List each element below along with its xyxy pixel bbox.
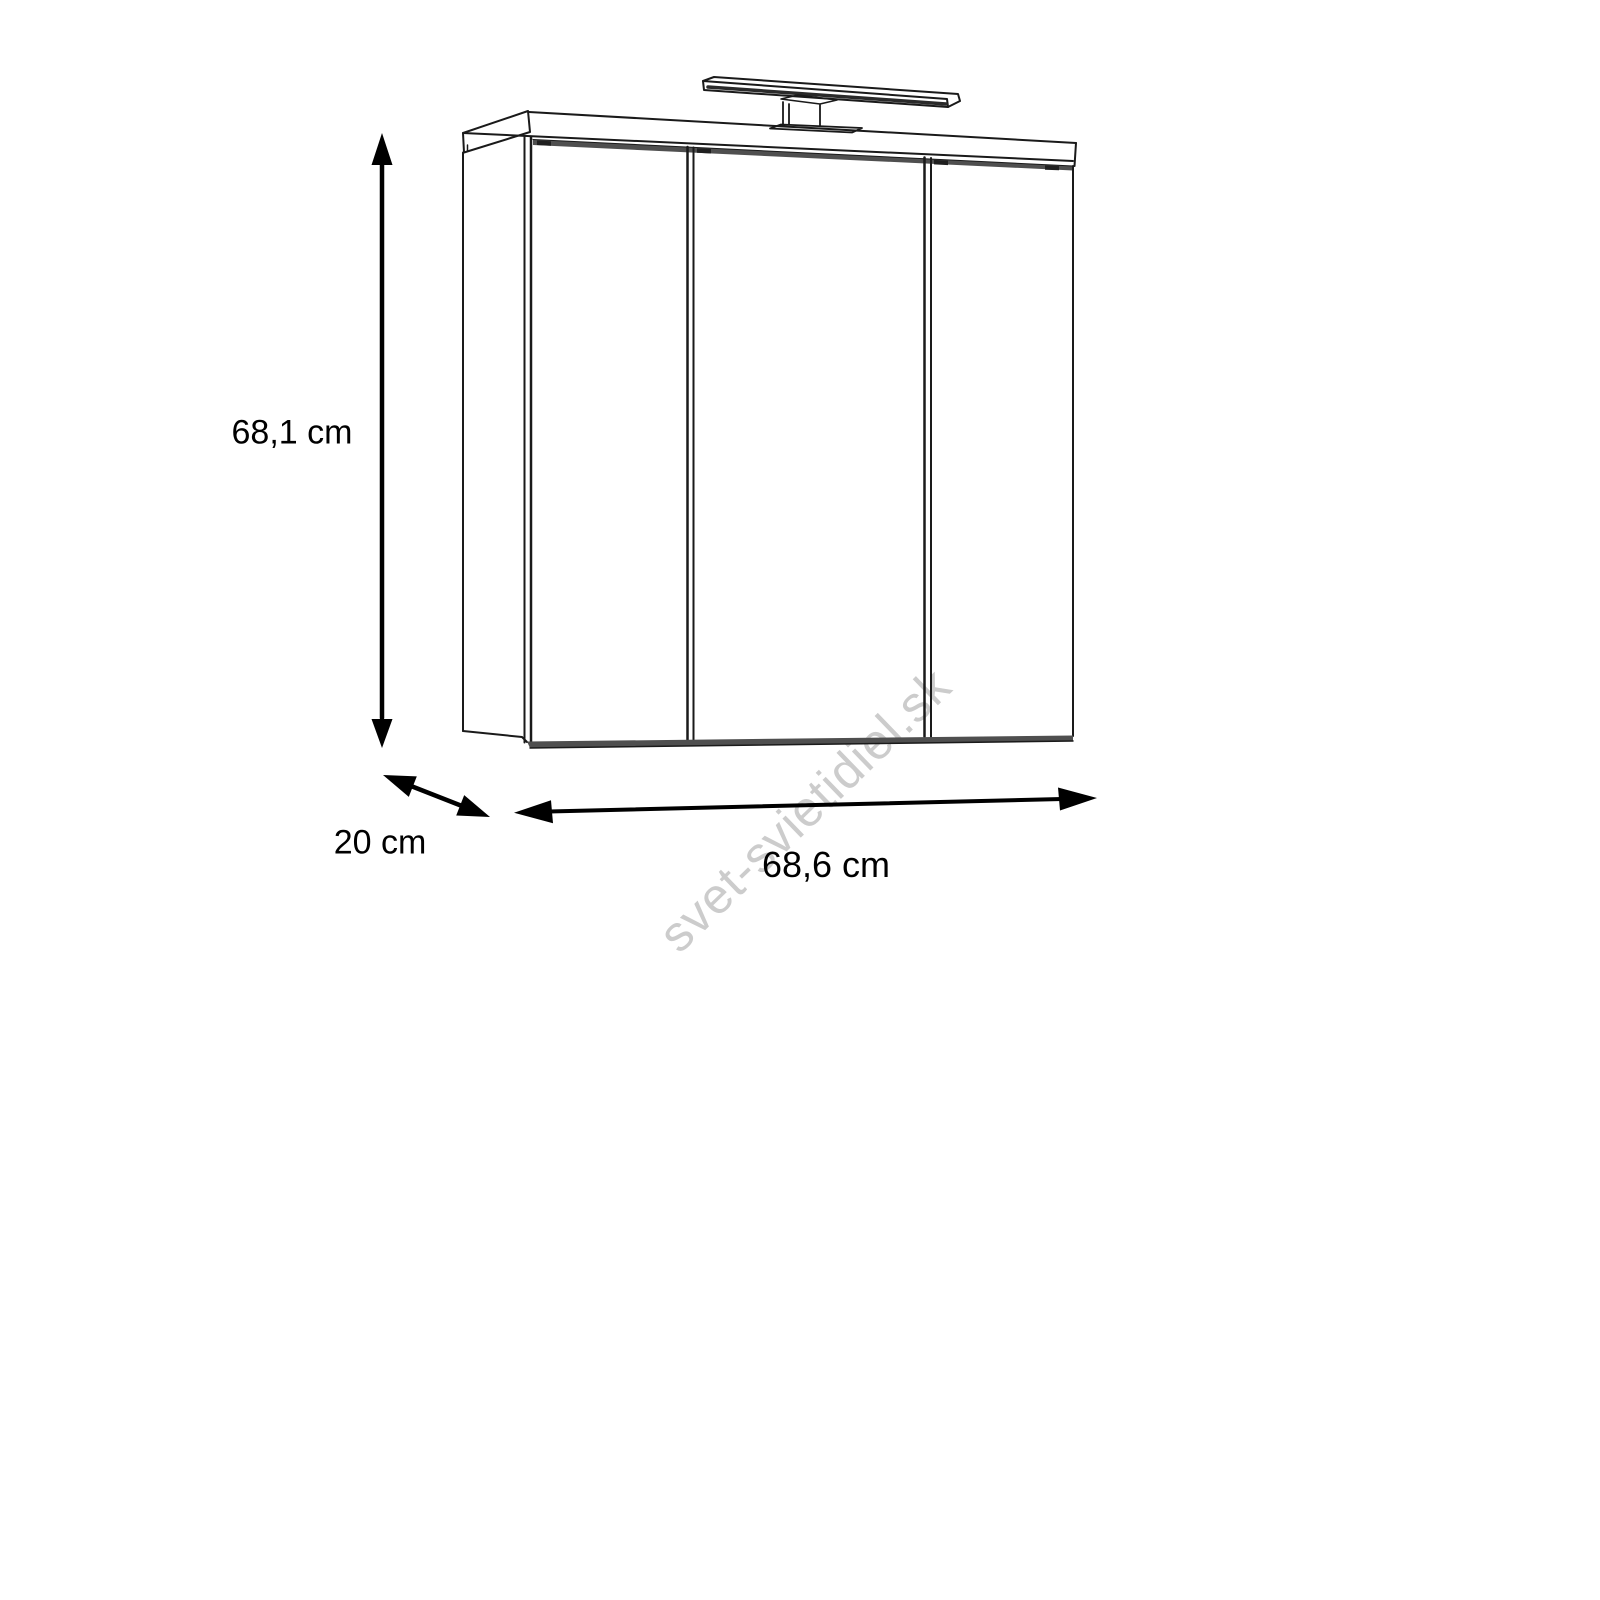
cabinet-line-drawing — [0, 0, 1600, 1600]
width-dimension-arrow — [514, 788, 1097, 824]
arrow-left-head-icon — [514, 800, 553, 823]
height-dimension-arrow — [372, 133, 393, 748]
slab-back-top-edge — [529, 112, 1076, 143]
hinge-plate-icon — [537, 141, 551, 146]
depth-dimension-label: 20 cm — [334, 824, 427, 863]
depth-dimension-arrow — [383, 775, 490, 817]
mirror-doors — [525, 137, 1074, 745]
depth-arrow-shaft — [411, 786, 462, 806]
dimension-diagram-page: svet-svietidiel.sk — [0, 0, 1600, 1600]
slab-right-end — [1075, 143, 1077, 166]
arrow-downright-head-icon — [456, 795, 490, 817]
height-dimension-label: 68,1 cm — [232, 414, 353, 453]
hinge-plate-icon — [697, 148, 711, 153]
cabinet-top-slab — [463, 111, 1076, 166]
door-top-shadow-band — [533, 140, 1073, 171]
arrow-right-head-icon — [1058, 788, 1097, 811]
width-dimension-label: 68,6 cm — [762, 844, 890, 886]
cabinet-side-panel — [463, 153, 527, 743]
slab-left-end-face — [463, 111, 530, 153]
width-arrow-shaft — [549, 799, 1062, 812]
arrow-down-head-icon — [372, 719, 393, 748]
hinge-plate-icon — [1045, 165, 1059, 170]
dimension-arrows — [372, 133, 1098, 823]
arrow-up-head-icon — [372, 133, 393, 165]
side-bottom-edge — [463, 731, 527, 742]
lamp-stem — [783, 102, 820, 126]
cabinet-drawing — [463, 111, 1076, 748]
hinge-plate-icon — [934, 160, 948, 165]
arrow-upleft-head-icon — [383, 775, 417, 797]
door-top-edge-line — [533, 140, 1073, 167]
